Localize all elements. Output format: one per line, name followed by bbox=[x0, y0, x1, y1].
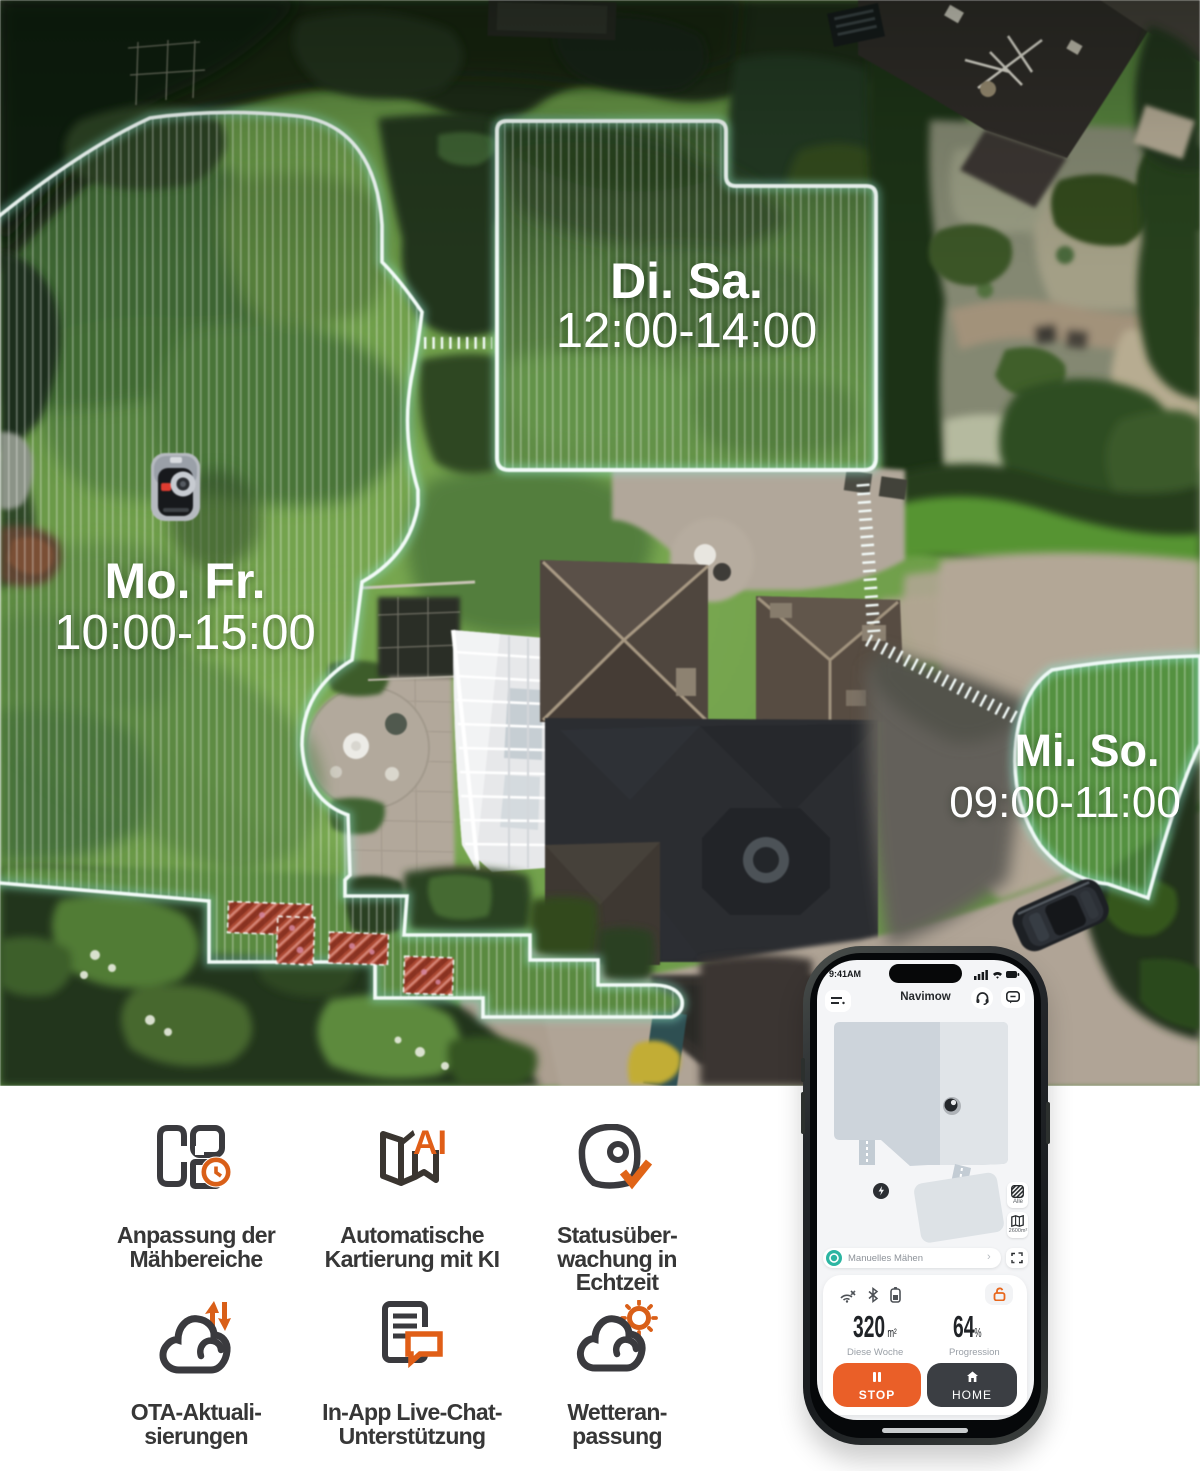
svg-text:AI: AI bbox=[413, 1126, 445, 1162]
